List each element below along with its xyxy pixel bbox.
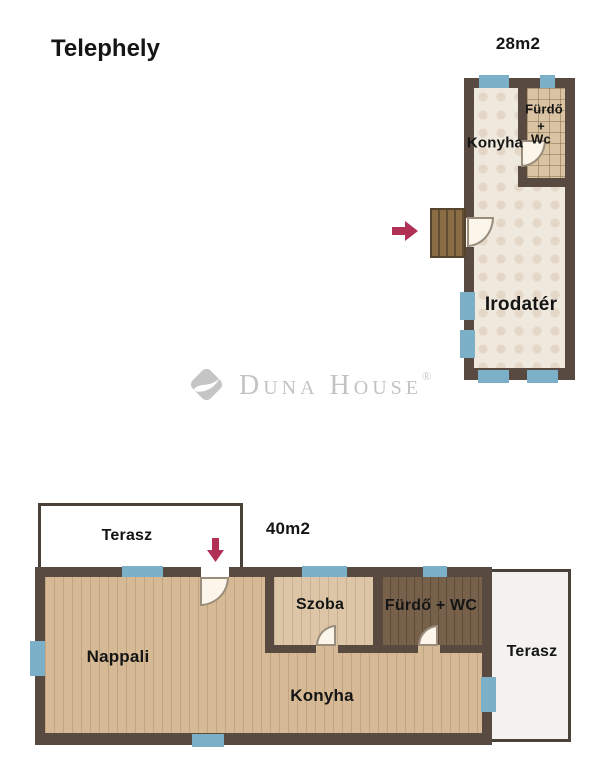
room-label-furdo: Fürdő <box>525 102 563 117</box>
watermark-text: Duna House® <box>239 370 431 400</box>
window <box>460 292 475 320</box>
lower-entrance-door <box>200 577 229 606</box>
szoba-furdo-divider-wall <box>373 577 382 653</box>
room-label-konyha-upper: Konyha <box>467 135 523 152</box>
window <box>540 75 555 88</box>
duna-house-diamond-icon <box>183 361 230 408</box>
window <box>481 677 496 712</box>
duna-house-watermark: Duna House® <box>183 361 431 408</box>
page-title: Telephely <box>51 35 160 63</box>
window <box>460 330 475 358</box>
lower-entrance-gap <box>201 567 229 577</box>
interior-wall <box>338 645 418 653</box>
room-label-terasz-top: Terasz <box>102 527 153 545</box>
room-label-terasz-right: Terasz <box>507 643 558 661</box>
room-label-irodater: Irodatér <box>485 294 557 316</box>
window <box>30 641 45 676</box>
window <box>527 370 558 383</box>
room-label-konyha-lower: Konyha <box>290 686 354 706</box>
window <box>302 566 347 577</box>
room-label-wc: Wc <box>531 132 551 147</box>
window <box>122 566 163 577</box>
szoba-wall <box>265 577 274 653</box>
interior-wall <box>265 645 316 653</box>
window <box>479 75 509 88</box>
floorplan-page: Telephely 28m2 Konyha Fürdő + Wc Irodaté… <box>0 0 600 774</box>
window <box>192 734 224 747</box>
upper-plan-area-label: 28m2 <box>496 34 540 54</box>
arrow-down-icon <box>206 537 225 563</box>
room-label-furdo-wc: Fürdő + WC <box>385 597 477 615</box>
bathroom-wall <box>518 178 565 187</box>
lower-plan-area-label: 40m2 <box>266 519 310 539</box>
room-label-szoba: Szoba <box>296 596 344 614</box>
registered-mark: ® <box>422 369 431 383</box>
interior-wall <box>440 645 482 653</box>
window <box>423 566 447 577</box>
entrance-steps <box>430 208 466 258</box>
arrow-right-icon <box>391 219 419 243</box>
room-label-nappali: Nappali <box>87 647 150 667</box>
window <box>478 370 509 383</box>
watermark-brand: Duna House <box>239 370 422 401</box>
